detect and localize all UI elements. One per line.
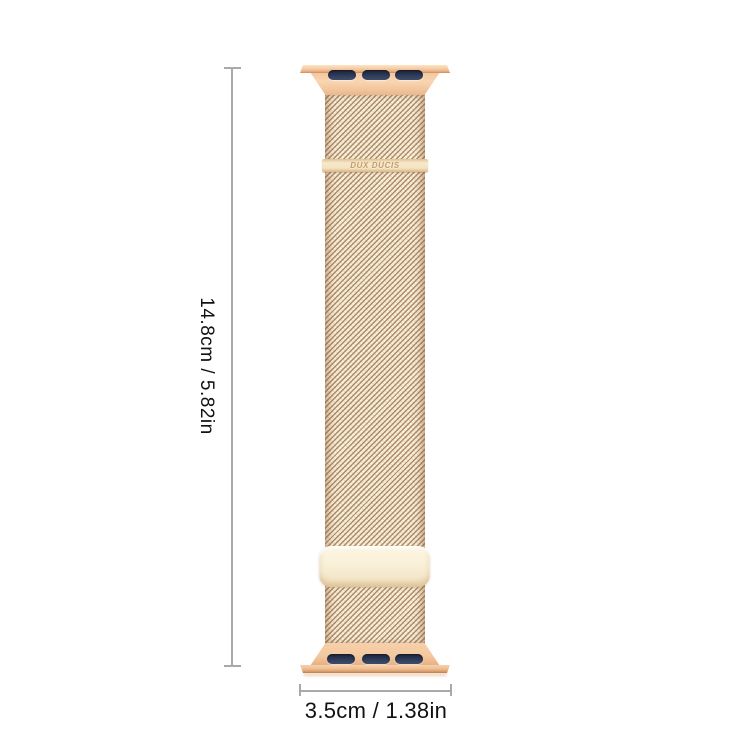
height-dimension-tick-bottom <box>224 665 241 667</box>
brand-plate: DUX DUCIS <box>322 159 428 172</box>
height-dimension-line <box>231 68 233 666</box>
width-dimension-tick-left <box>299 684 301 696</box>
height-dimension-tick-top <box>224 67 241 69</box>
connector-slot <box>395 654 423 664</box>
brand-logo-text: DUX DUCIS <box>350 162 399 170</box>
magnetic-clasp-plate <box>319 546 430 587</box>
height-dimension-label: 14.8cm / 5.82in <box>195 297 217 434</box>
width-dimension-tick-right <box>450 684 452 696</box>
connector-slot <box>327 654 355 664</box>
width-dimension-line <box>300 690 452 692</box>
width-dimension-label: 3.5cm / 1.38in <box>305 698 447 724</box>
connector-slot <box>362 70 390 80</box>
product-image-canvas: 14.8cm / 5.82in DUX DUCIS 3.5cm / 1.38in <box>0 0 750 750</box>
connector-slot <box>328 70 356 80</box>
connector-slot <box>395 70 423 80</box>
connector-slot <box>362 654 390 664</box>
band-bottom-connector-bar <box>300 665 450 673</box>
band-drop-shadow <box>303 673 447 678</box>
